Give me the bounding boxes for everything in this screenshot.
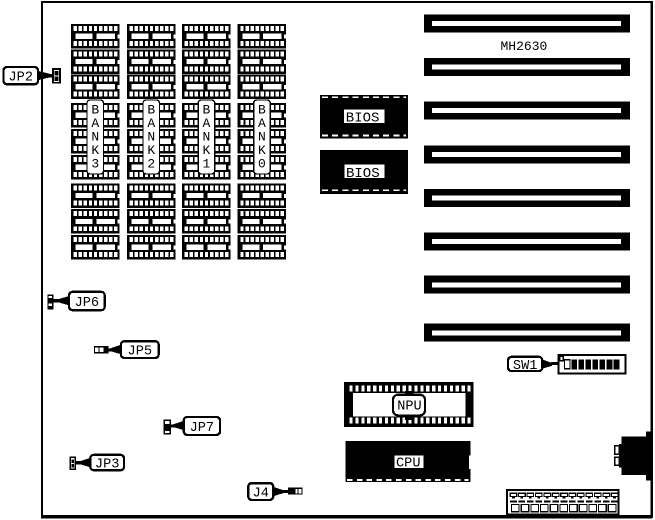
svg-text:JP3: JP3 bbox=[95, 457, 119, 472]
svg-text:J4: J4 bbox=[253, 486, 269, 501]
svg-text:BIOS: BIOS bbox=[346, 166, 380, 182]
svg-text:JP7: JP7 bbox=[190, 421, 214, 436]
svg-text:JP2: JP2 bbox=[9, 70, 33, 85]
svg-text:JP6: JP6 bbox=[75, 296, 99, 311]
svg-text:3: 3 bbox=[91, 156, 99, 171]
svg-text:1: 1 bbox=[203, 156, 211, 171]
svg-text:SW1: SW1 bbox=[513, 359, 537, 374]
svg-text:CPU: CPU bbox=[396, 456, 420, 471]
svg-text:0: 0 bbox=[258, 156, 266, 171]
svg-text:2: 2 bbox=[147, 156, 155, 171]
svg-text:NPU: NPU bbox=[397, 400, 421, 415]
svg-text:MH2630: MH2630 bbox=[501, 39, 548, 54]
svg-text:JP5: JP5 bbox=[128, 344, 152, 359]
svg-text:BIOS: BIOS bbox=[346, 110, 380, 126]
